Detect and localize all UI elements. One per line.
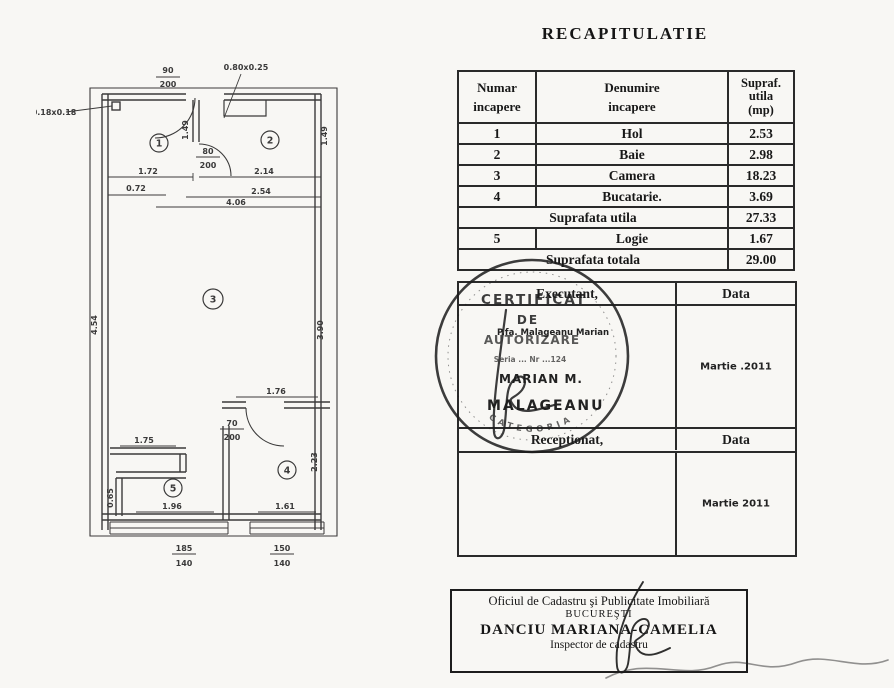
executant-cell: P.fa. Malageanu Marian MARIAN M. MALAGEA…	[459, 306, 677, 427]
dim-065: 0.65	[106, 488, 115, 508]
executant-name: P.fa. Malageanu Marian	[497, 328, 609, 338]
room-1-number: 1	[156, 139, 163, 150]
dim-door-top-d: 200	[160, 80, 177, 89]
room-3-number: 3	[210, 295, 217, 306]
dim-door-top-n: 90	[162, 66, 174, 75]
dim-beam: 0.80x0.25	[224, 63, 269, 72]
dim-door-low-d: 200	[224, 433, 241, 442]
dim-390: 3.90	[316, 320, 325, 340]
total-area: 29.00	[728, 249, 794, 270]
dim-win2-n: 150	[274, 544, 291, 553]
inspector-title: Inspector de cadastru	[452, 639, 746, 651]
room-number: 5	[458, 228, 536, 249]
room-number: 3	[458, 165, 536, 186]
room-name: Camera	[536, 165, 728, 186]
dim-175: 1.75	[134, 436, 154, 445]
scanned-cadastral-document: 1 2 3 4 5 0.18x0.18 0.80x0.25 90 200 80 …	[0, 0, 894, 688]
dim-406: 4.06	[226, 198, 246, 207]
room-number: 4	[458, 186, 536, 207]
room-area: 2.53	[728, 123, 794, 144]
table-row-total: Suprafata totala 29.00	[458, 249, 794, 270]
table-row-total: Suprafata utila 27.33	[458, 207, 794, 228]
signature-table: Executant, Data P.fa. Malageanu Marian M…	[457, 281, 797, 557]
executant-header: Executant,	[459, 283, 677, 304]
col-header-suprafata: Supraf. utila (mp)	[728, 71, 794, 123]
receptionat-date: Martie 2011	[677, 499, 795, 510]
dim-149b: 1.49	[320, 126, 329, 146]
table-row: 5 Logie 1.67	[458, 228, 794, 249]
executant-date: Martie .2011	[677, 361, 795, 372]
room-area: 1.67	[728, 228, 794, 249]
total-label: Suprafata utila	[458, 207, 728, 228]
dim-win1-n: 185	[176, 544, 193, 553]
dim-door-mid-n: 80	[202, 147, 214, 156]
cadastre-office-box: Oficiul de Cadastru şi Publicitate Imobi…	[450, 589, 748, 673]
room-name: Hol	[536, 123, 728, 144]
room-name: Bucatarie.	[536, 186, 728, 207]
table-row: 4 Bucatarie. 3.69	[458, 186, 794, 207]
table-row: 3 Camera 18.23	[458, 165, 794, 186]
room-4-number: 4	[284, 466, 291, 477]
dim-214: 2.14	[254, 167, 274, 176]
office-city: BUCUREŞTI	[452, 609, 746, 620]
recap-table: Numar incapere Denumire incapere Supraf.…	[457, 70, 795, 271]
dim-454: 4.54	[90, 315, 99, 335]
data-header: Data	[677, 283, 795, 304]
dim-pillar: 0.18x0.18	[36, 108, 77, 117]
total-label: Suprafata totala	[458, 249, 728, 270]
executant-sig-line1: MARIAN M.	[499, 372, 583, 386]
receptionat-header: Receptionat,	[459, 429, 677, 450]
room-area: 3.69	[728, 186, 794, 207]
data-header-2: Data	[677, 429, 795, 450]
room-area: 2.98	[728, 144, 794, 165]
inspector-name: DANCIU MARIANA-CAMELIA	[452, 622, 746, 639]
table-row: 2 Baie 2.98	[458, 144, 794, 165]
receptionat-date-cell: Martie 2011	[677, 453, 795, 555]
dim-072: 0.72	[126, 184, 146, 193]
floor-plan-drawing: 1 2 3 4 5 0.18x0.18 0.80x0.25 90 200 80 …	[36, 58, 356, 578]
room-number: 2	[458, 144, 536, 165]
dim-win1-d: 140	[176, 559, 193, 568]
room-name: Baie	[536, 144, 728, 165]
dim-254: 2.54	[251, 187, 271, 196]
col-header-numar: Numar incapere	[458, 71, 536, 123]
dim-149a: 1.49	[181, 120, 190, 140]
plan-dimension-labels: 0.18x0.18 0.80x0.25 90 200 80 200 1.72 2…	[36, 63, 329, 568]
room-2-number: 2	[267, 136, 274, 147]
room-number: 1	[458, 123, 536, 144]
dim-223: 2.23	[310, 452, 319, 472]
office-name: Oficiul de Cadastru şi Publicitate Imobi…	[452, 594, 746, 609]
dim-172: 1.72	[138, 167, 158, 176]
dim-161: 1.61	[275, 502, 295, 511]
col-header-denumire: Denumire incapere	[536, 71, 728, 123]
total-area: 27.33	[728, 207, 794, 228]
room-5-number: 5	[170, 484, 177, 495]
dim-win2-d: 140	[274, 559, 291, 568]
room-area: 18.23	[728, 165, 794, 186]
plan-walls	[66, 74, 337, 554]
dim-176: 1.76	[266, 387, 286, 396]
executant-sig-line2: MALAGEANU	[487, 398, 605, 414]
dim-door-mid-d: 200	[200, 161, 217, 170]
dim-door-low-n: 70	[226, 419, 238, 428]
page-title: RECAPITULATIE	[457, 24, 793, 44]
executant-date-cell: Martie .2011	[677, 306, 795, 427]
receptionat-cell	[459, 453, 677, 555]
dim-196: 1.96	[162, 502, 182, 511]
room-name: Logie	[536, 228, 728, 249]
table-row: 1 Hol 2.53	[458, 123, 794, 144]
